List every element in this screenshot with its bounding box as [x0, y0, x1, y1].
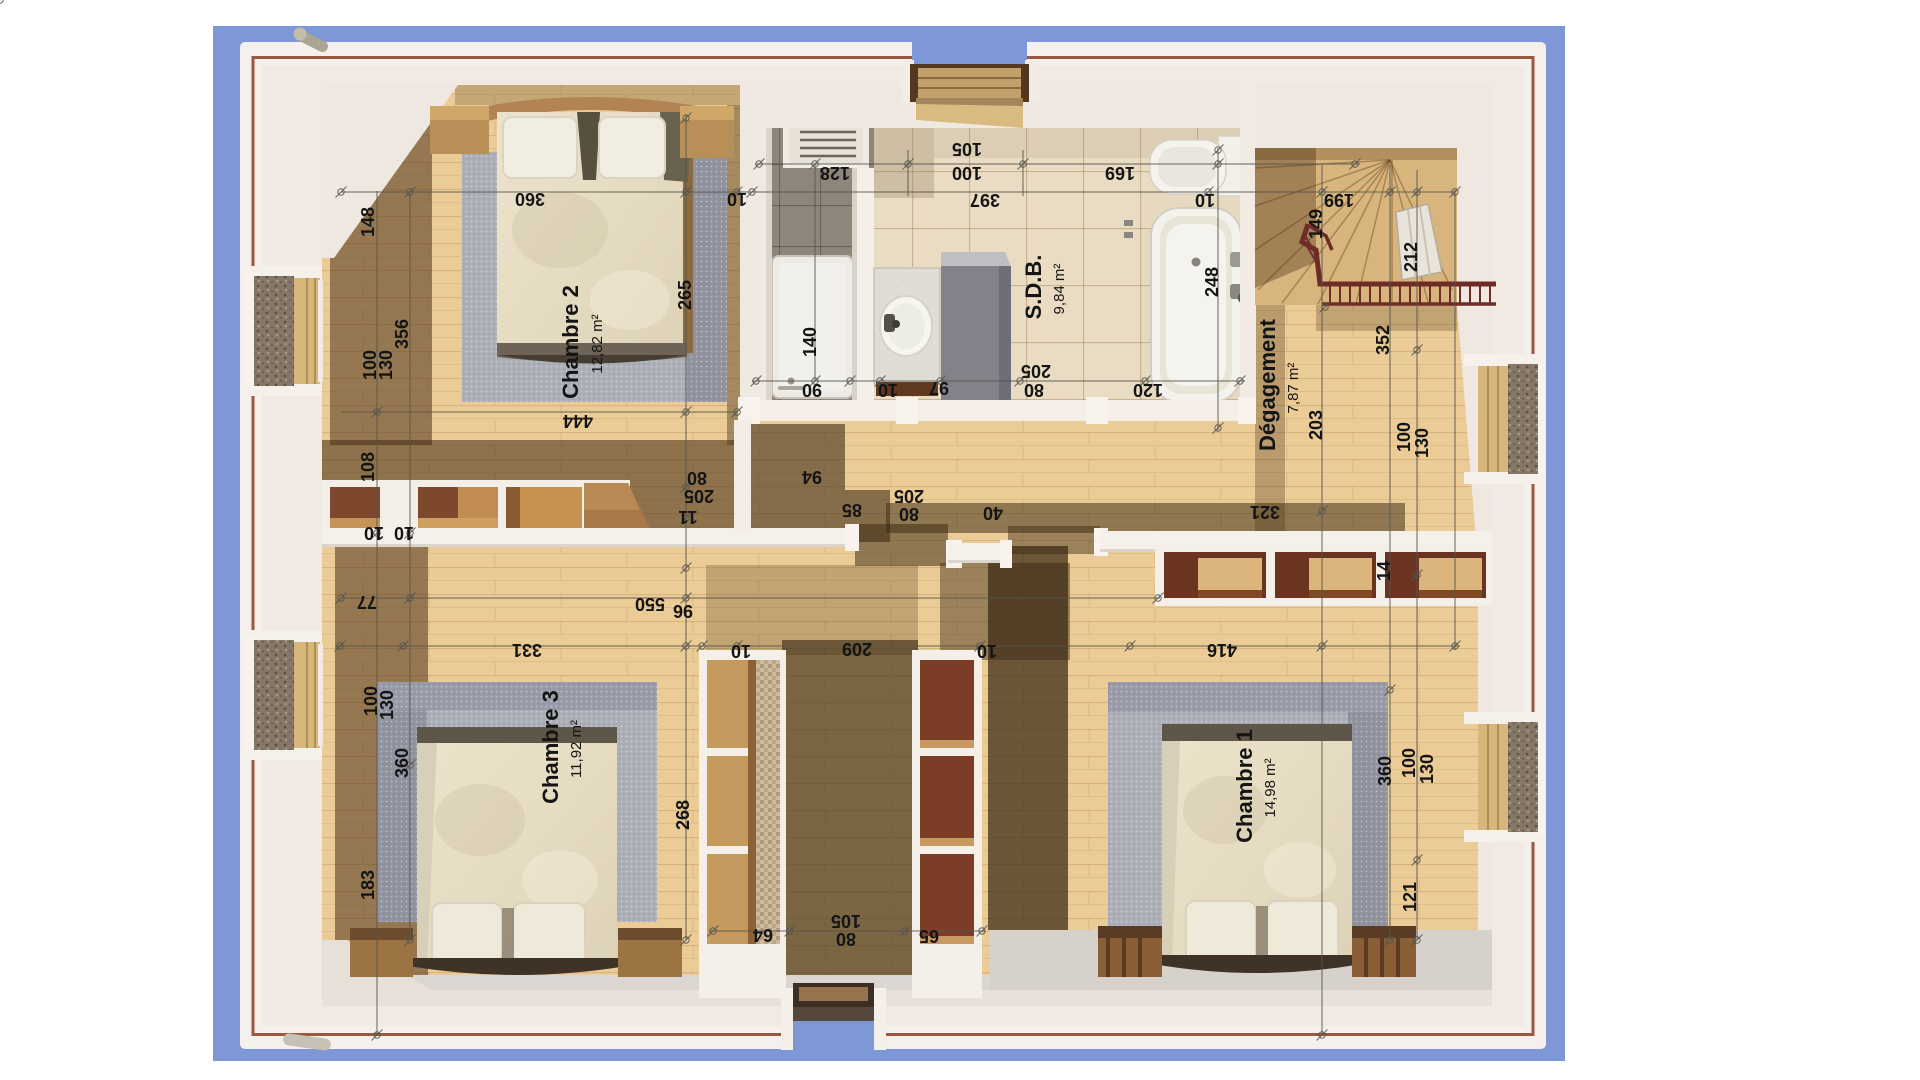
svg-text:356: 356	[392, 319, 412, 349]
svg-text:321: 321	[1250, 502, 1280, 522]
svg-text:108: 108	[358, 452, 378, 482]
svg-text:121: 121	[1400, 882, 1420, 912]
svg-text:130: 130	[376, 350, 396, 380]
svg-text:10: 10	[731, 641, 751, 661]
svg-text:80: 80	[899, 504, 919, 524]
svg-text:183: 183	[358, 870, 378, 900]
svg-text:130: 130	[1417, 754, 1437, 784]
svg-text:128: 128	[820, 163, 850, 183]
svg-text:Dégagement: Dégagement	[1255, 318, 1280, 451]
svg-text:105: 105	[831, 911, 861, 931]
svg-text:268: 268	[673, 800, 693, 830]
svg-text:14: 14	[1374, 561, 1394, 581]
svg-text:205: 205	[1021, 361, 1051, 381]
svg-text:360: 360	[1375, 756, 1395, 786]
svg-text:130: 130	[377, 690, 397, 720]
svg-text:100: 100	[1394, 422, 1414, 452]
svg-text:9,84 m²: 9,84 m²	[1051, 264, 1068, 315]
svg-text:77: 77	[357, 592, 377, 612]
svg-text:10: 10	[727, 189, 747, 209]
svg-text:105: 105	[952, 139, 982, 159]
svg-text:90: 90	[802, 380, 822, 400]
svg-text:100: 100	[952, 163, 982, 183]
svg-text:S.D.B.: S.D.B.	[1021, 255, 1046, 320]
svg-text:149: 149	[1306, 209, 1326, 239]
svg-text:65: 65	[919, 926, 939, 946]
svg-text:140: 140	[800, 327, 820, 357]
svg-text:169: 169	[1105, 163, 1135, 183]
svg-text:130: 130	[1412, 428, 1432, 458]
svg-text:203: 203	[1306, 410, 1326, 440]
svg-text:550: 550	[635, 594, 665, 614]
svg-text:248: 248	[1202, 267, 1222, 297]
svg-text:148: 148	[358, 207, 378, 237]
svg-text:416: 416	[1207, 640, 1237, 660]
svg-text:94: 94	[802, 467, 822, 487]
svg-text:Chambre 2: Chambre 2	[558, 285, 583, 399]
svg-text:80: 80	[1024, 380, 1044, 400]
svg-text:64: 64	[753, 925, 773, 945]
svg-text:40: 40	[983, 503, 1003, 523]
svg-text:10: 10	[878, 380, 898, 400]
svg-text:10: 10	[364, 523, 384, 543]
svg-text:12,82 m²: 12,82 m²	[589, 314, 606, 373]
svg-text:397: 397	[970, 190, 1000, 210]
svg-text:205: 205	[894, 486, 924, 506]
svg-text:444: 444	[563, 411, 593, 431]
svg-text:209: 209	[842, 639, 872, 659]
svg-text:10: 10	[394, 523, 414, 543]
svg-text:120: 120	[1133, 380, 1163, 400]
svg-text:96: 96	[673, 601, 693, 621]
svg-text:212: 212	[1401, 242, 1421, 272]
svg-text:Chambre 3: Chambre 3	[538, 690, 563, 804]
svg-text:331: 331	[512, 640, 542, 660]
svg-text:97: 97	[929, 378, 949, 398]
svg-text:10: 10	[977, 641, 997, 661]
svg-text:352: 352	[1373, 325, 1393, 355]
svg-text:80: 80	[687, 468, 707, 488]
svg-text:205: 205	[684, 486, 714, 506]
svg-text:265: 265	[675, 280, 695, 310]
svg-text:10: 10	[1195, 190, 1215, 210]
svg-text:85: 85	[842, 500, 862, 520]
svg-text:360: 360	[515, 189, 545, 209]
svg-text:7,87 m²: 7,87 m²	[1285, 363, 1302, 414]
svg-text:199: 199	[1324, 190, 1354, 210]
svg-text:14,98 m²: 14,98 m²	[1262, 758, 1279, 817]
svg-text:100: 100	[1399, 748, 1419, 778]
svg-text:360: 360	[392, 748, 412, 778]
svg-text:Chambre 1: Chambre 1	[1232, 729, 1257, 843]
svg-text:11: 11	[678, 507, 697, 527]
svg-text:80: 80	[836, 929, 856, 949]
svg-text:11,92 m²: 11,92 m²	[568, 720, 585, 778]
